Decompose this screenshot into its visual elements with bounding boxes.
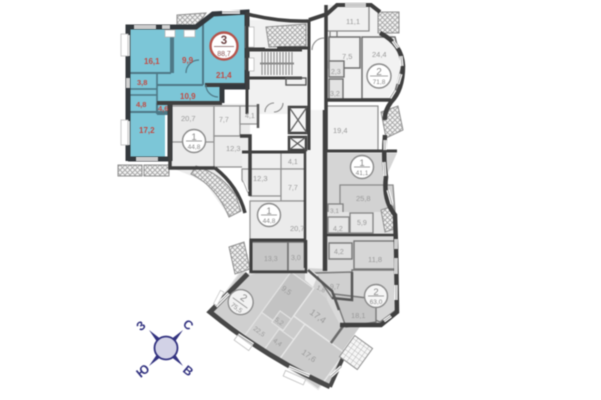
svg-text:4,1: 4,1	[245, 113, 255, 120]
svg-text:19,4: 19,4	[333, 126, 348, 135]
svg-text:9,9: 9,9	[182, 56, 194, 65]
svg-text:71,8: 71,8	[373, 79, 386, 86]
svg-text:20,7: 20,7	[181, 114, 196, 123]
svg-text:4,8: 4,8	[136, 100, 146, 109]
svg-text:24,4: 24,4	[372, 50, 387, 59]
svg-text:3,8: 3,8	[137, 78, 147, 87]
svg-text:11,8: 11,8	[368, 255, 382, 264]
svg-text:16,1: 16,1	[144, 57, 160, 66]
svg-text:3,1: 3,1	[330, 208, 339, 215]
svg-text:12,3: 12,3	[253, 174, 268, 183]
svg-text:4,1: 4,1	[288, 159, 298, 166]
svg-text:2,3: 2,3	[331, 69, 341, 76]
svg-text:4,2: 4,2	[333, 226, 343, 233]
svg-text:25,8: 25,8	[356, 194, 371, 203]
svg-text:11,1: 11,1	[346, 17, 360, 26]
svg-text:44,8: 44,8	[188, 144, 201, 151]
svg-text:21,4: 21,4	[216, 71, 232, 80]
svg-text:3: 3	[221, 35, 227, 47]
svg-text:63,0: 63,0	[370, 299, 383, 306]
svg-text:41,1: 41,1	[356, 170, 369, 177]
svg-text:3,2: 3,2	[330, 91, 340, 98]
svg-text:4,2: 4,2	[334, 249, 344, 256]
svg-text:7,5: 7,5	[342, 52, 352, 61]
svg-text:3,0: 3,0	[291, 255, 301, 262]
svg-text:13,3: 13,3	[264, 256, 278, 263]
svg-text:20,7: 20,7	[290, 224, 305, 233]
svg-text:12,3: 12,3	[226, 144, 241, 153]
svg-text:5,9: 5,9	[357, 220, 367, 227]
svg-text:88,7: 88,7	[217, 51, 231, 58]
svg-text:9,7: 9,7	[330, 284, 340, 291]
svg-text:10,9: 10,9	[180, 92, 196, 101]
svg-text:7,7: 7,7	[288, 185, 298, 192]
svg-text:4,6: 4,6	[158, 104, 168, 113]
svg-text:44,8: 44,8	[263, 218, 276, 225]
svg-text:18,1: 18,1	[351, 311, 366, 320]
svg-text:17,2: 17,2	[139, 126, 155, 135]
svg-text:7,7: 7,7	[219, 117, 229, 124]
